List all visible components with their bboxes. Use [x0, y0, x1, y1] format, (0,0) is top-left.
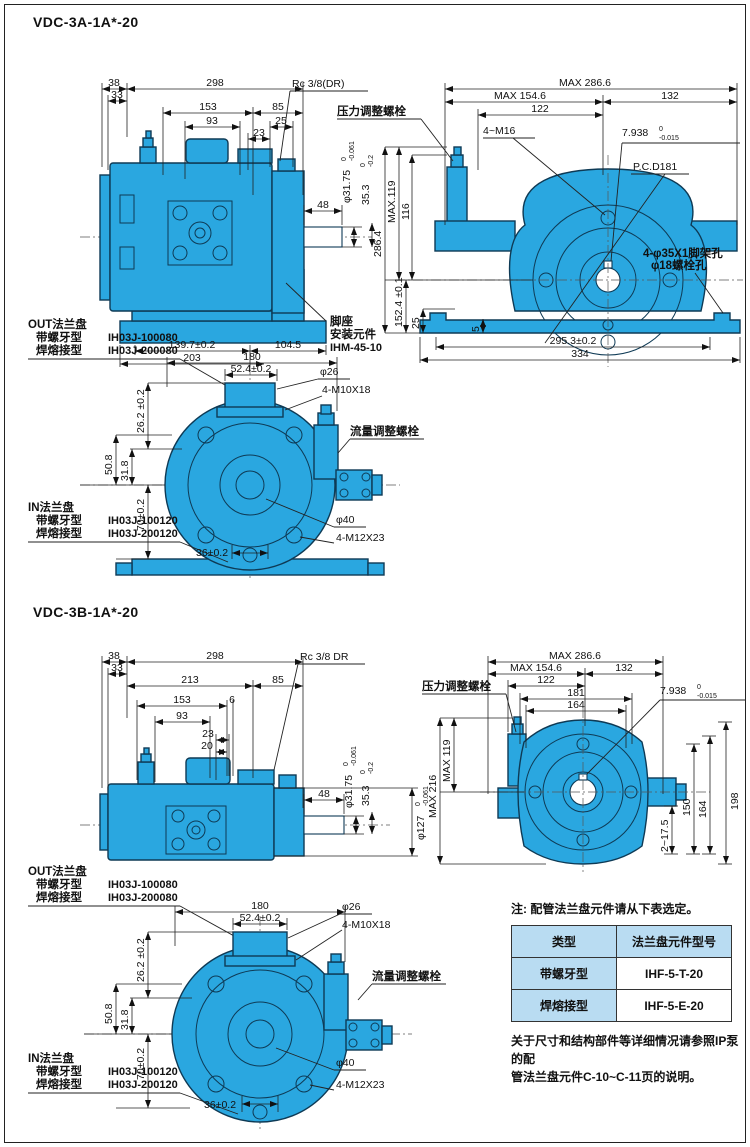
tol-top: 0: [697, 684, 701, 691]
dim-85: 85: [272, 674, 284, 686]
m10-label: 4-M10X18: [322, 384, 371, 396]
note-footer: 关于尺寸和结构部件等详细情况请参照IP泵的配管法兰盘元件C-10~C-11页的说…: [511, 1032, 750, 1086]
dim-213: 213: [181, 674, 199, 686]
vdc3b-bottom-view: OUT法兰盘 带螺牙型 IH03J-100080 焊熔接型 IH03J-2000…: [20, 862, 500, 1137]
dim-2-17-5: 2~17.5: [659, 819, 671, 852]
tol-top: 0: [343, 762, 350, 766]
dim-198: 198: [729, 792, 741, 810]
foot-hole-label-2: φ18螺栓孔: [651, 258, 707, 272]
dim-295-3: 295.3±0.2: [550, 335, 597, 347]
pcd-label: P.C.D181: [633, 161, 677, 173]
in-flange-label: IN法兰盘: [28, 1051, 74, 1065]
in-flange-label: IN法兰盘: [28, 500, 74, 514]
dim-6: 6: [229, 694, 235, 706]
model-title-1: VDC-3A-1A*-20: [33, 14, 139, 30]
m10-label: 4-M10X18: [342, 919, 391, 931]
tol-bottom: -0.2: [368, 762, 375, 774]
weld-type-label: 焊熔接型: [36, 526, 82, 540]
dim-33: 33: [111, 662, 123, 674]
weld-type-label: 焊熔接型: [36, 343, 82, 357]
dim-116: 116: [400, 203, 412, 220]
flow-bolt-callout: 流量调整螺栓: [358, 969, 446, 1000]
dim-5: 5: [470, 326, 482, 332]
dim-31-8: 31.8: [119, 1009, 131, 1030]
model-title-2: VDC-3B-1A*-20: [33, 604, 139, 620]
table-row: 带螺牙型 IHF-5-T-20: [512, 958, 732, 990]
weld-type-code: IH03J-200080: [108, 892, 178, 904]
note-footer-line-2: 管法兰盘元件C-10~C-11页的说明。: [511, 1070, 701, 1084]
dim-122: 122: [531, 103, 549, 115]
tol-bottom: -0.015: [659, 135, 679, 142]
weld-type-code: IH03J-200120: [108, 1079, 178, 1091]
thread-type-label: 带螺牙型: [36, 877, 82, 891]
table-header-row: 类型 法兰盘元件型号: [512, 926, 732, 958]
dim-key-height: 35.3: [360, 785, 372, 806]
out-flange-label: OUT法兰盘: [28, 317, 87, 331]
table-row: 焊熔接型 IHF-5-E-20: [512, 990, 732, 1022]
thread-type-code: IH03J-100120: [108, 515, 178, 527]
dim-52-4: 52.4±0.2: [231, 363, 272, 375]
phi26-label: φ26: [342, 901, 361, 913]
dim-max119: MAX 119: [441, 739, 453, 782]
vdc3b-front-view: MAX 286.6 MAX 154.6 132 122 181 164 7.93…: [420, 648, 750, 876]
dim-max216: MAX 216: [427, 775, 439, 818]
pressure-bolt-label: 压力调整螺栓: [422, 679, 491, 693]
dim-153: 153: [199, 101, 217, 113]
pressure-bolt-callout: 压力调整螺栓: [422, 679, 516, 732]
m12-label: 4-M12X23: [336, 532, 385, 544]
row-value-weld: IHF-5-E-20: [617, 990, 732, 1022]
weld-type-code: IH03J-200080: [108, 345, 178, 357]
dim-38: 38: [108, 650, 120, 662]
m16-label: 4~M16: [483, 125, 516, 137]
dim-50-8: 50.8: [103, 454, 115, 475]
pressure-bolt-callout: 压力调整螺栓: [337, 104, 453, 161]
dim-334: 334: [571, 348, 589, 360]
dim-shaft-dia: φ31.75: [343, 775, 355, 808]
dim-298: 298: [206, 77, 224, 89]
note-footer-line-1: 关于尺寸和结构部件等详细情况请参照IP泵的配: [511, 1034, 738, 1066]
dim-180: 180: [243, 351, 261, 363]
dim-max-154: MAX 154.6: [510, 662, 562, 674]
row-label-weld: 焊熔接型: [512, 990, 617, 1022]
dim-max119: MAX.119: [386, 180, 398, 223]
phi40-label: φ40: [336, 514, 355, 526]
row-label-thread: 带螺牙型: [512, 958, 617, 990]
col-header-type: 类型: [512, 926, 617, 958]
row-value-thread: IHF-5-T-20: [617, 958, 732, 990]
phi26-label: φ26: [320, 366, 339, 378]
dim-164-right: 164: [697, 800, 709, 818]
vdc3b-side-view: 38 298 33 213 85 153 6 93 23 20 Rc 3/8 D…: [20, 648, 450, 886]
dim-181: 181: [567, 687, 585, 699]
tol-top: 0: [659, 126, 663, 133]
dim-max-286: MAX 286.6: [549, 650, 601, 662]
dim-286-4: 286.4: [372, 231, 384, 257]
thread-type-label: 带螺牙型: [36, 513, 82, 527]
dim-26-2: 26.2 ±0.2: [135, 389, 147, 433]
phi40-label: φ40: [336, 1057, 355, 1069]
dim-298: 298: [206, 650, 224, 662]
pump-body-bottom: [84, 916, 412, 1130]
weld-type-label: 焊熔接型: [36, 1077, 82, 1091]
dim-150: 150: [681, 798, 693, 816]
dim-31-8: 31.8: [119, 460, 131, 481]
note-heading: 注: 配管法兰盘元件请从下表选定。: [511, 900, 750, 917]
dim-33: 33: [111, 89, 123, 101]
flow-bolt-label: 流量调整螺栓: [350, 424, 419, 438]
front-dimensions-bottom: 295.3±0.2 334: [420, 335, 740, 363]
vdc3a-bottom-view: OUT法兰盘 带螺牙型 IH03J-100080 焊熔接型 IH03J-2000…: [20, 315, 460, 583]
dim-23: 23: [253, 127, 265, 139]
dim-7938: 7.938: [660, 685, 686, 697]
dim-36: 36±0.2: [204, 1099, 236, 1111]
rc-drain-label: Rc 3/8 DR: [300, 651, 349, 663]
tol-bottom: -0.061: [351, 746, 358, 766]
dim-164: 164: [567, 699, 585, 711]
dim-50-8: 50.8: [103, 1003, 115, 1024]
col-header-model: 法兰盘元件型号: [617, 926, 732, 958]
weld-type-label: 焊熔接型: [36, 890, 82, 904]
dim-48: 48: [318, 788, 330, 800]
m12-label: 4-M12X23: [336, 1079, 385, 1091]
dim-132: 132: [661, 90, 679, 102]
dim-max-286: MAX 286.6: [559, 77, 611, 89]
dim-48: 48: [317, 199, 329, 211]
dim-122: 122: [537, 674, 555, 686]
thread-type-code: IH03J-100080: [108, 879, 178, 891]
thread-type-label: 带螺牙型: [36, 1064, 82, 1078]
thread-type-code: IH03J-100080: [108, 332, 178, 344]
flow-bolt-label: 流量调整螺栓: [372, 969, 441, 983]
dim-93: 93: [176, 710, 188, 722]
dim-7938: 7.938: [622, 127, 648, 139]
foot-hole-label-1: 4-φ35X1脚架孔: [643, 246, 723, 260]
dim-85: 85: [272, 101, 284, 113]
thread-type-code: IH03J-100120: [108, 1066, 178, 1078]
flange-table: 类型 法兰盘元件型号 带螺牙型 IHF-5-T-20 焊熔接型 IHF-5-E-…: [511, 925, 732, 1022]
flange-note-block: 注: 配管法兰盘元件请从下表选定。 类型 法兰盘元件型号 带螺牙型 IHF-5-…: [505, 900, 750, 1086]
dim-23: 23: [202, 728, 214, 740]
pump-body-side: [80, 131, 372, 343]
flow-bolt-callout: 流量调整螺栓: [338, 424, 424, 453]
dim-93: 93: [206, 115, 218, 127]
dim-132: 132: [615, 662, 633, 674]
m10-callout: 4-M10X18: [296, 919, 391, 960]
dim-36: 36±0.2: [196, 547, 228, 559]
dim-20: 20: [201, 740, 213, 752]
tol-top: 0: [360, 770, 367, 774]
dim-max-154: MAX 154.6: [494, 90, 546, 102]
out-flange-label: OUT法兰盘: [28, 864, 87, 878]
dim-180: 180: [251, 900, 269, 912]
dim-26-2: 26.2 ±0.2: [135, 938, 147, 982]
dim-38: 38: [108, 77, 120, 89]
thread-type-label: 带螺牙型: [36, 330, 82, 344]
weld-type-code: IH03J-200120: [108, 528, 178, 540]
dim-52-4: 52.4±0.2: [240, 912, 281, 924]
pressure-bolt-label: 压力调整螺栓: [337, 104, 406, 118]
pump-body-front: [480, 708, 710, 872]
dim-153: 153: [173, 694, 191, 706]
tol-bottom: -0.015: [697, 693, 717, 700]
